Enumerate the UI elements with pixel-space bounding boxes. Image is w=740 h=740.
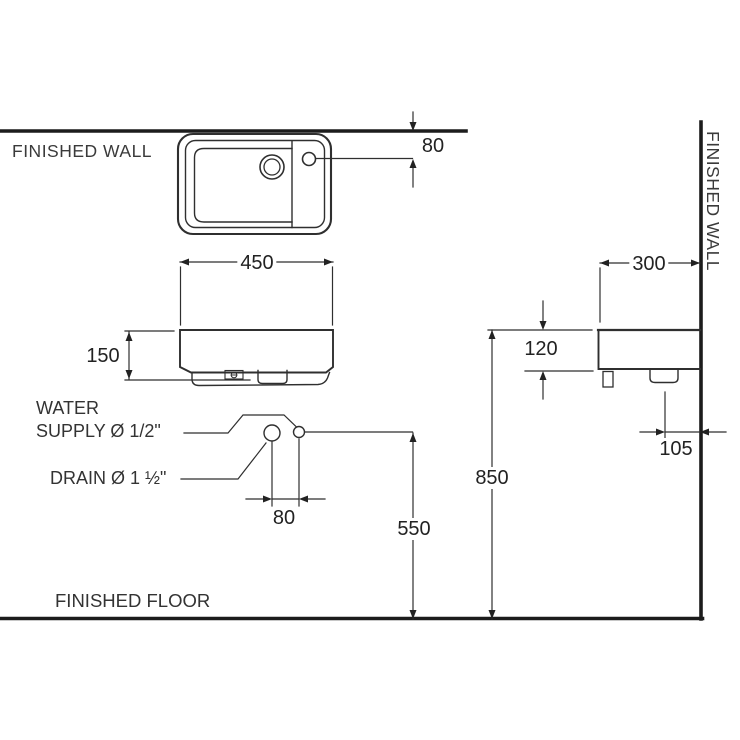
faucet-hole-top-view [303, 153, 316, 166]
supply-drain-stubs [181, 415, 413, 479]
finished-floor-label: FINISHED FLOOR [55, 590, 210, 612]
front-view [180, 330, 333, 386]
mounting-bracket-side [603, 372, 613, 388]
dim-105 [640, 392, 726, 438]
supply-stub-circle [294, 427, 305, 438]
water-supply-label: WATER SUPPLY Ø 1/2" [36, 397, 161, 443]
dim-300-value: 300 [629, 253, 668, 275]
installation-diagram: FINISHED WALL FINISHED WALL FINISHED FLO… [0, 0, 740, 740]
top-view [178, 134, 413, 234]
dim-120-value: 120 [521, 338, 560, 360]
finished-wall-right-label: FINISHED WALL [702, 131, 723, 271]
dim-450-value: 450 [237, 252, 276, 274]
dim-850-value: 850 [472, 467, 511, 489]
dim-150-value: 150 [83, 345, 122, 367]
drain-outlet-side [650, 370, 678, 383]
dim-80-bottom-value: 80 [270, 507, 298, 529]
side-view [598, 330, 700, 387]
finished-wall-top-label: FINISHED WALL [12, 141, 152, 162]
drain-stub-circle [264, 425, 280, 441]
drain-leader [181, 443, 266, 479]
dim-80-top [410, 112, 417, 187]
dim-80-top-value: 80 [419, 135, 447, 157]
dim-550-value: 550 [394, 518, 433, 540]
dim-80-bottom [246, 439, 325, 506]
drain-label: DRAIN Ø 1 ½" [50, 468, 166, 489]
dim-105-value: 105 [656, 438, 695, 460]
water-supply-label-line1: WATER [36, 398, 99, 418]
water-supply-label-line2: SUPPLY Ø 1/2" [36, 421, 161, 441]
diagram-linework [0, 0, 740, 740]
